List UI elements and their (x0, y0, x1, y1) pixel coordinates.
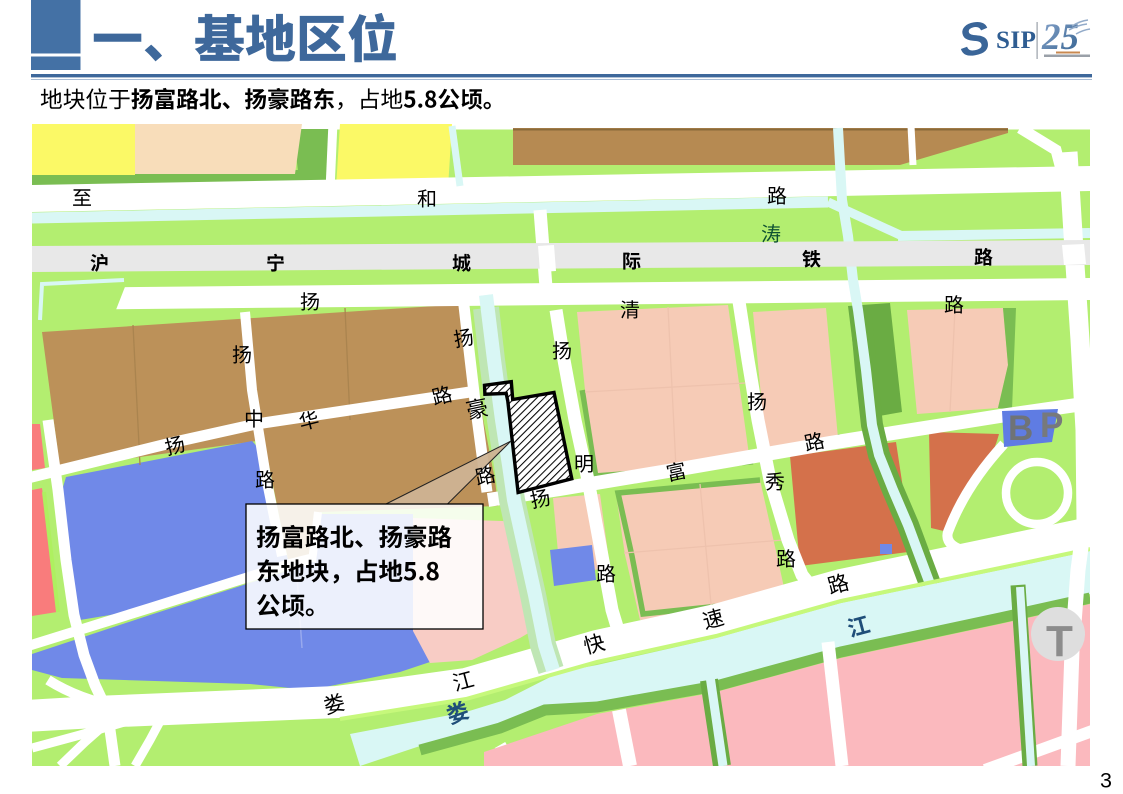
svg-text:SIP: SIP (996, 27, 1036, 54)
svg-text:3: 3 (1100, 769, 1112, 793)
svg-text:T: T (1046, 617, 1073, 666)
svg-text:P: P (1040, 406, 1063, 445)
svg-text:S: S (954, 10, 994, 67)
svg-text:B: B (1008, 409, 1033, 448)
